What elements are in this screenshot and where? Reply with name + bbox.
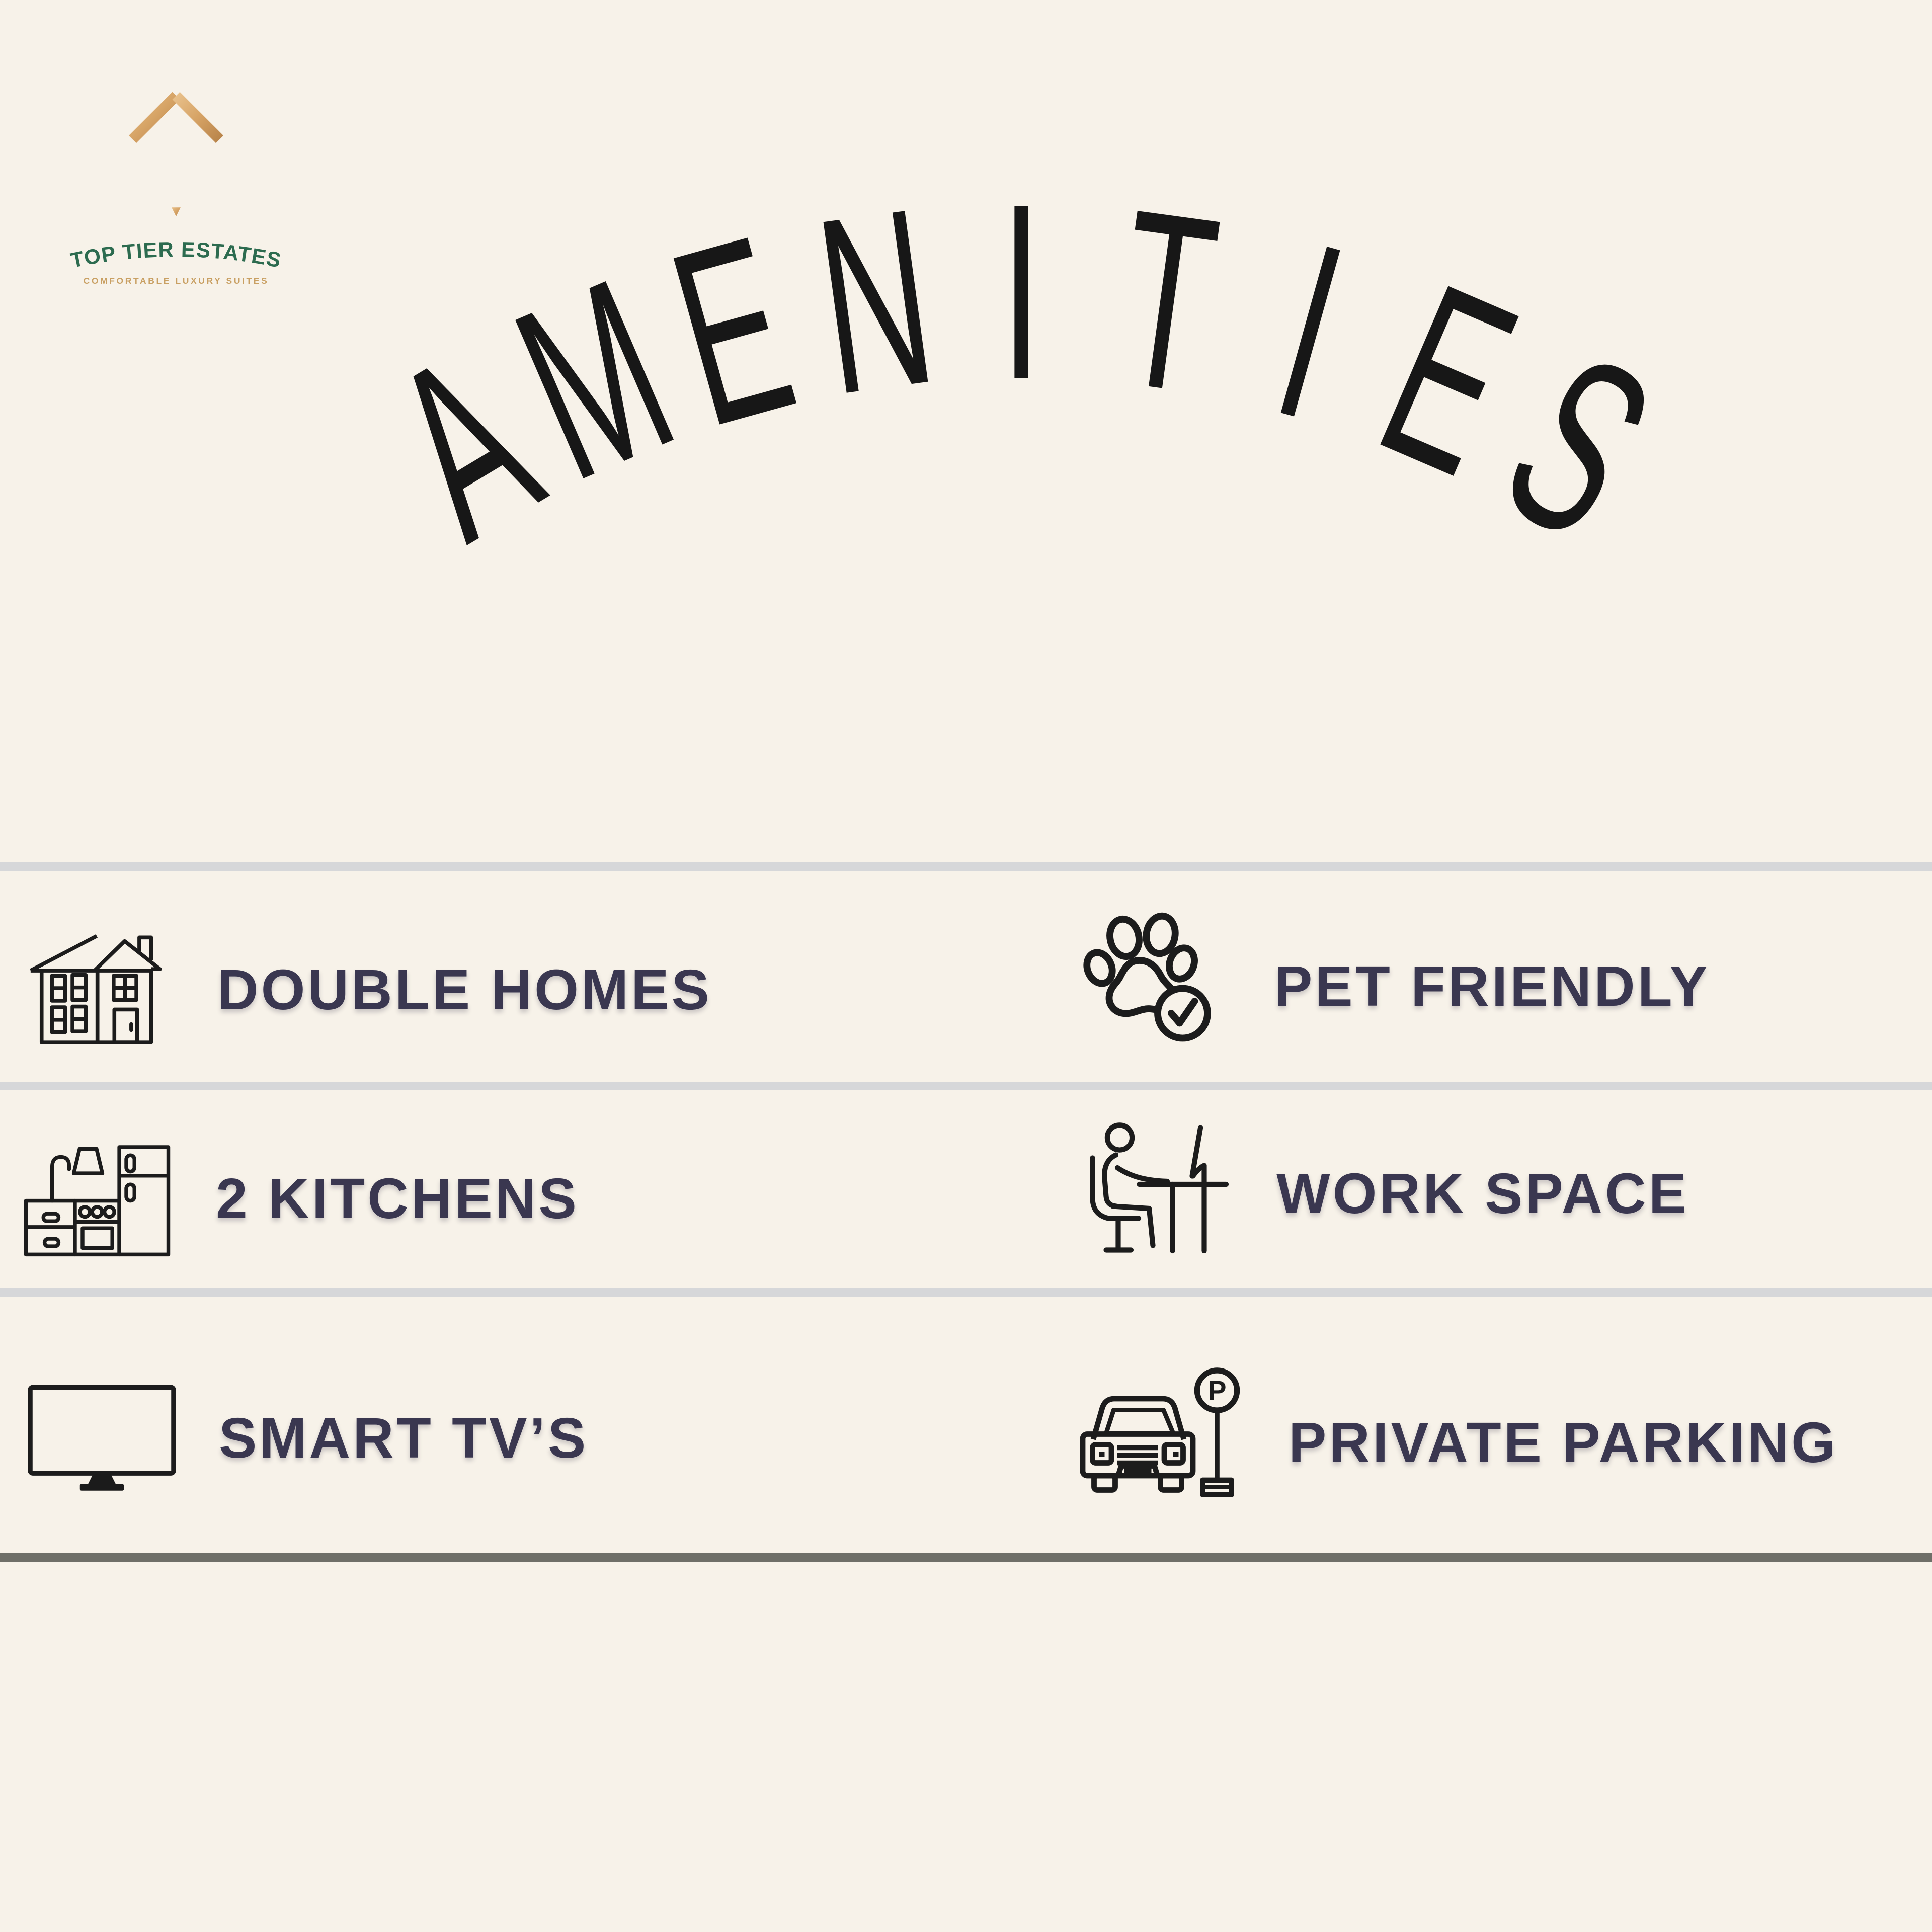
kitchen-icon bbox=[21, 1140, 173, 1257]
divider-line bbox=[0, 862, 1932, 871]
title-letter: T bbox=[1106, 172, 1229, 433]
amenity-item-double-homes: DOUBLE HOMES bbox=[28, 917, 712, 1063]
amenity-item-pet-friendly: PET FRIENDLY bbox=[1081, 906, 1710, 1067]
amenity-label: SMART TV’S bbox=[219, 1405, 588, 1471]
paw-check-icon bbox=[1081, 911, 1232, 1062]
title-letter: I bbox=[1001, 167, 1041, 418]
amenity-item-smart-tvs: SMART TV’S bbox=[28, 1383, 588, 1493]
amenity-label: PRIVATE PARKING bbox=[1289, 1410, 1838, 1475]
divider-line bbox=[0, 1288, 1932, 1297]
title-letter: I bbox=[1257, 205, 1363, 458]
house-icon bbox=[28, 924, 175, 1056]
divider-line-dark bbox=[0, 1553, 1932, 1562]
parking-sign-letter: P bbox=[1207, 1375, 1226, 1406]
title-letter: N bbox=[806, 171, 945, 434]
amenity-item-private-parking: P PRIVATE PARKING bbox=[1077, 1364, 1838, 1520]
parking-icon: P bbox=[1077, 1367, 1246, 1518]
amenity-label: DOUBLE HOMES bbox=[217, 957, 712, 1022]
amenity-label: WORK SPACE bbox=[1276, 1161, 1689, 1226]
divider-line bbox=[0, 1082, 1932, 1090]
tv-icon bbox=[28, 1385, 176, 1491]
amenity-label: PET FRIENDLY bbox=[1274, 953, 1710, 1019]
amenity-item-work-space: WORK SPACE bbox=[1083, 1118, 1689, 1269]
amenities-title: AMENITIES bbox=[0, 0, 1932, 755]
amenity-label: 2 KITCHENS bbox=[216, 1166, 579, 1231]
workspace-icon bbox=[1083, 1118, 1234, 1269]
amenity-item-2-kitchens: 2 KITCHENS bbox=[21, 1138, 579, 1259]
